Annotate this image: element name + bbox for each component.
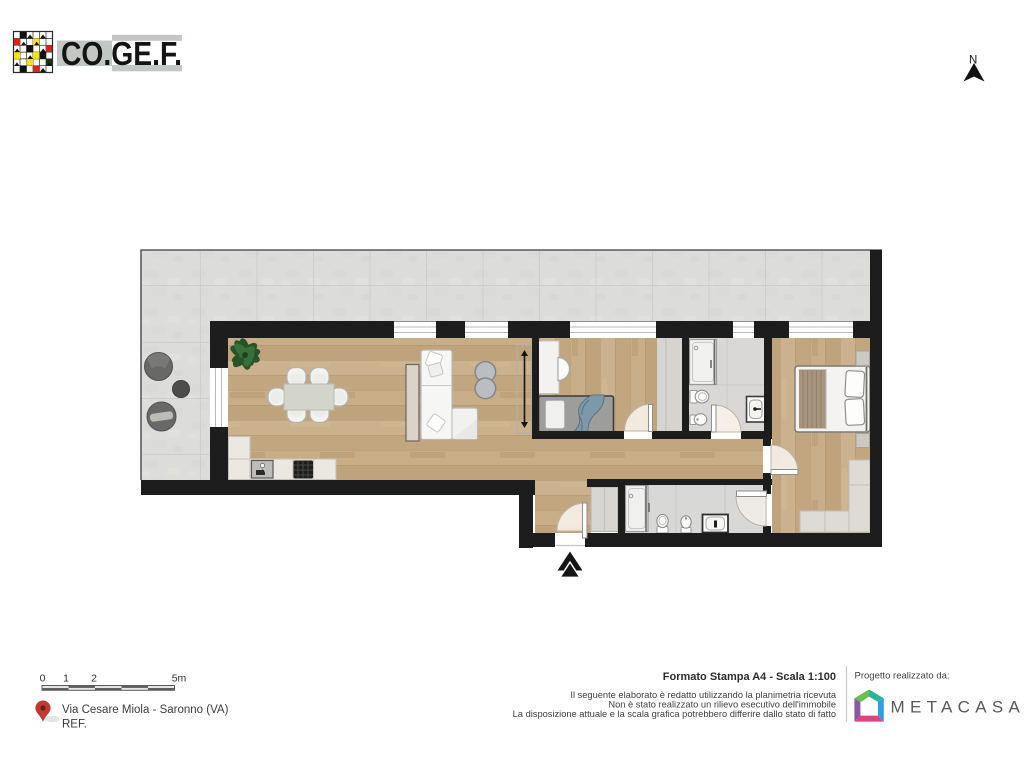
svg-text:REF.: REF. (62, 719, 87, 731)
svg-text:2: 2 (91, 673, 97, 685)
svg-text:Non è stato realizzato un rili: Non è stato realizzato un rilievo esecut… (608, 700, 836, 710)
svg-text:La disposizione attuale e la s: La disposizione attuale e la scala grafi… (513, 709, 836, 719)
svg-text:0: 0 (40, 673, 46, 685)
svg-text:METACASA: METACASA (891, 698, 1024, 717)
svg-text:Il seguente elaborato è redatt: Il seguente elaborato è redatto utilizza… (570, 690, 836, 700)
svg-text:Formato Stampa A4 - Scala 1:10: Formato Stampa A4 - Scala 1:100 (663, 671, 836, 683)
svg-text:CO.GE.F.: CO.GE.F. (61, 35, 182, 72)
svg-text:Progetto realizzato da:: Progetto realizzato da: (855, 671, 950, 682)
svg-text:Via Cesare Miola - Saronno (VA: Via Cesare Miola - Saronno (VA) (62, 704, 229, 716)
svg-text:5m: 5m (172, 673, 187, 685)
svg-text:1: 1 (63, 673, 69, 685)
